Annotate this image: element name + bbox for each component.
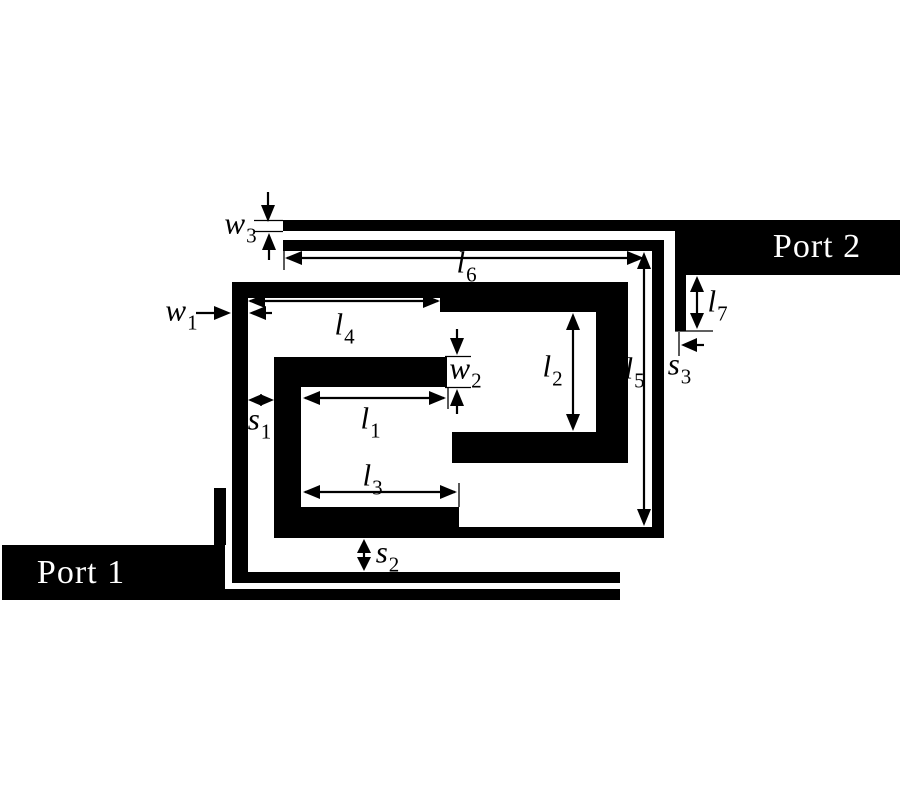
resonatorB-bottom-strip: [274, 507, 459, 538]
dim-label-l2: l2: [542, 350, 561, 387]
resonatorA-inner-bar: [452, 432, 628, 463]
port1-feedline-bottom: [225, 589, 620, 600]
dim-label-w2: w2: [449, 352, 480, 389]
dim-label-s1: s1: [248, 403, 271, 440]
layout-drawing: [0, 0, 900, 800]
port1-label-text: Port 1: [37, 554, 125, 591]
port2-label: Port 2: [773, 230, 861, 264]
port2-stub: [675, 275, 686, 331]
dim-label-l6: l6: [456, 246, 475, 283]
dim-label-l3: l3: [362, 459, 381, 496]
port2-label-text: Port 2: [773, 228, 861, 265]
dim-label-s2: s2: [376, 536, 399, 573]
resonatorA-left-strip: [232, 282, 248, 583]
dim-label-w3: w3: [224, 207, 255, 244]
dim-label-l4: l4: [334, 308, 353, 345]
conductor-strips: [2, 220, 900, 600]
dim-label-l1: l1: [360, 402, 379, 439]
port2-feedline-top: [283, 220, 675, 231]
dim-s2-arrow: [357, 539, 371, 571]
dim-label-l7: l7: [707, 285, 726, 322]
port1-label: Port 1: [37, 556, 125, 590]
dim-l2-arrow: [566, 313, 580, 431]
port1-stub: [214, 488, 226, 545]
filter-layout-figure: Port 1 Port 2 w3 l6 w1 l4 w2 l2 l5 s3 l7…: [0, 0, 900, 800]
dim-label-l5: l5: [624, 352, 643, 389]
resonatorA-bottom-strip: [232, 572, 620, 583]
dim-w3-arrows: [254, 192, 283, 260]
resonatorC-bottom-strip: [459, 527, 664, 538]
dim-label-w1: w1: [165, 294, 196, 331]
dim-label-s3: s3: [668, 348, 691, 385]
resonatorC-right-strip: [652, 240, 664, 538]
